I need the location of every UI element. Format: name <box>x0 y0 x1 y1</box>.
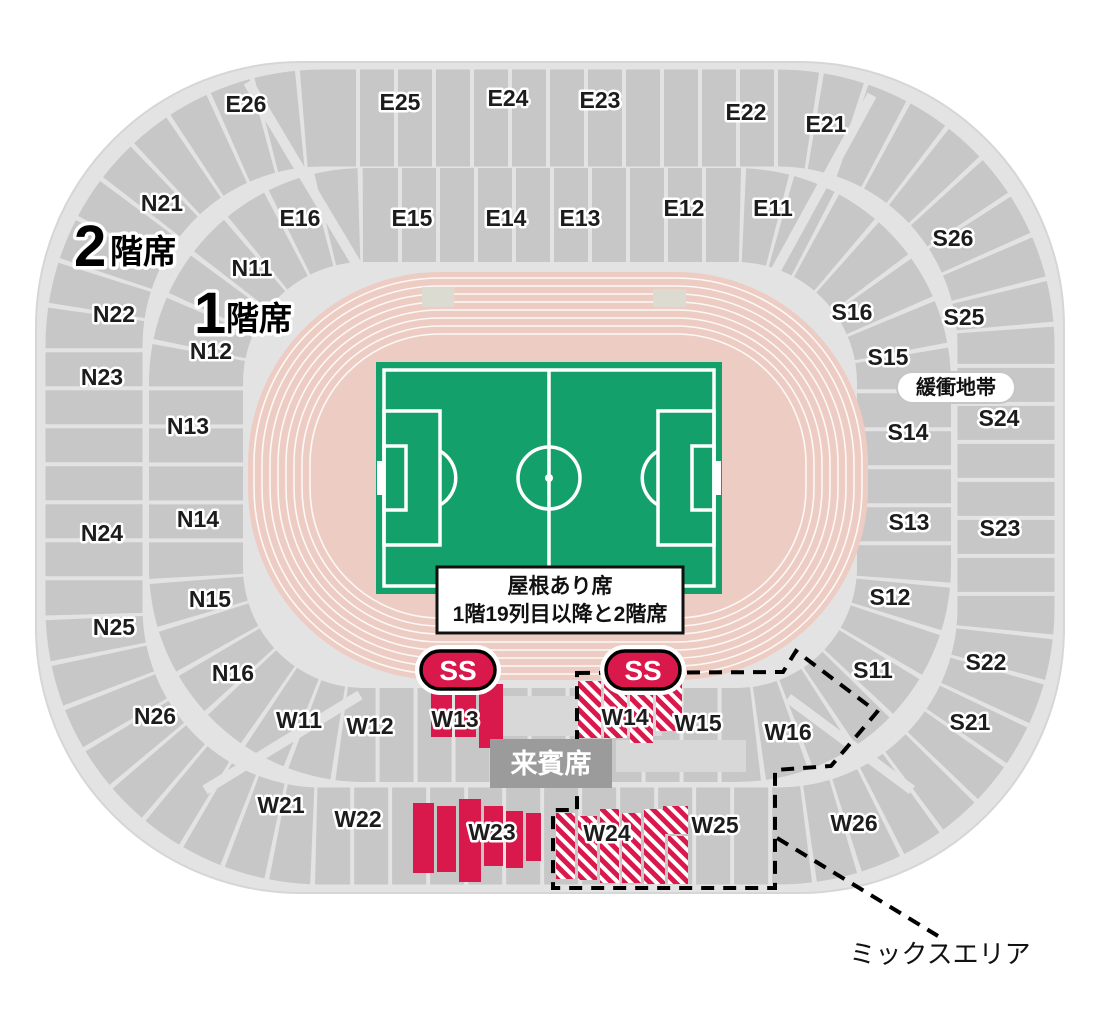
section-label: N24 <box>81 520 123 546</box>
section-label: W25 <box>691 812 739 838</box>
section-label: S15 <box>868 344 909 370</box>
section-label: W14 <box>601 704 649 730</box>
section-label: S12 <box>870 584 911 610</box>
section-label: E12 <box>664 195 705 221</box>
section-label: N22 <box>93 301 135 327</box>
section-label: W15 <box>674 710 722 736</box>
buffer-zone-pill: 緩衝地帯 <box>897 372 1015 403</box>
mix-area-label: ミックスエリア <box>849 939 1030 969</box>
stadium-seating-map: 来賓席 SS SS 屋根あり席 1階19列目以降と2階席 緩衝地帯 E26 E2… <box>0 0 1100 1034</box>
roof-note-line1: 屋根あり席 <box>508 574 613 598</box>
section-label: N15 <box>189 586 231 612</box>
tier-1-suffix: 階席 <box>226 300 292 337</box>
vip-seats-label: 来賓席 <box>511 748 592 779</box>
section-label: E26 <box>226 91 267 117</box>
section-label: E22 <box>726 99 767 125</box>
ss-badge: SS <box>415 645 501 695</box>
ss-badge: SS <box>600 645 686 695</box>
ss-badge-label: SS <box>624 655 661 686</box>
section-label: S24 <box>979 405 1020 431</box>
section-label: S16 <box>832 299 873 325</box>
section-label: S13 <box>889 509 930 535</box>
section-label: S25 <box>944 304 985 330</box>
section-label: E13 <box>560 205 601 231</box>
section-label: N26 <box>134 703 176 729</box>
section-label: S21 <box>950 709 991 735</box>
section-label: S11 <box>853 657 893 683</box>
section-label: S26 <box>933 225 974 251</box>
tier-1-number: 1 <box>194 281 226 346</box>
tier-2-number: 2 <box>74 214 106 279</box>
buffer-zone-label: 緩衝地帯 <box>916 375 996 399</box>
section-label: E23 <box>580 87 621 113</box>
section-label: S14 <box>888 419 929 445</box>
west-subrow <box>616 740 746 772</box>
section-label: W23 <box>468 819 515 845</box>
ss-badge-label: SS <box>439 655 476 686</box>
roof-note-box: 屋根あり席 1階19列目以降と2階席 <box>437 567 683 633</box>
section-label: W24 <box>583 820 631 846</box>
section-label: E21 <box>806 111 847 137</box>
tier-2-suffix: 階席 <box>110 233 176 270</box>
section-label: W22 <box>334 806 381 832</box>
section-label: N16 <box>212 660 254 686</box>
section-label: W13 <box>431 706 478 732</box>
section-label: W11 <box>276 707 322 733</box>
section-label: N13 <box>167 413 209 439</box>
section-label: N25 <box>93 614 135 640</box>
section-label: N23 <box>81 364 123 390</box>
stadium-map-canvas: 来賓席 SS SS 屋根あり席 1階19列目以降と2階席 緩衝地帯 E26 E2… <box>0 0 1100 1034</box>
section-label: W16 <box>764 719 811 745</box>
section-label: N14 <box>177 506 219 532</box>
section-label: N21 <box>141 190 183 216</box>
section-label: W26 <box>830 810 877 836</box>
section-label: S23 <box>980 515 1021 541</box>
track-infield-block <box>422 287 454 307</box>
section-label: E15 <box>392 205 433 231</box>
track-infield-block <box>653 289 686 307</box>
roof-note-line2: 1階19列目以降と2階席 <box>453 602 668 626</box>
section-label: W12 <box>346 713 393 739</box>
section-label: E24 <box>488 85 529 111</box>
section-label: E16 <box>280 205 321 231</box>
section-label: S22 <box>966 649 1007 675</box>
vip-seats-box: 来賓席 <box>490 739 612 788</box>
section-label: W21 <box>257 792 305 818</box>
section-label: E25 <box>380 89 421 115</box>
section-label: E14 <box>486 205 527 231</box>
section-label: E11 <box>753 195 793 221</box>
section-label: N11 <box>232 255 273 281</box>
